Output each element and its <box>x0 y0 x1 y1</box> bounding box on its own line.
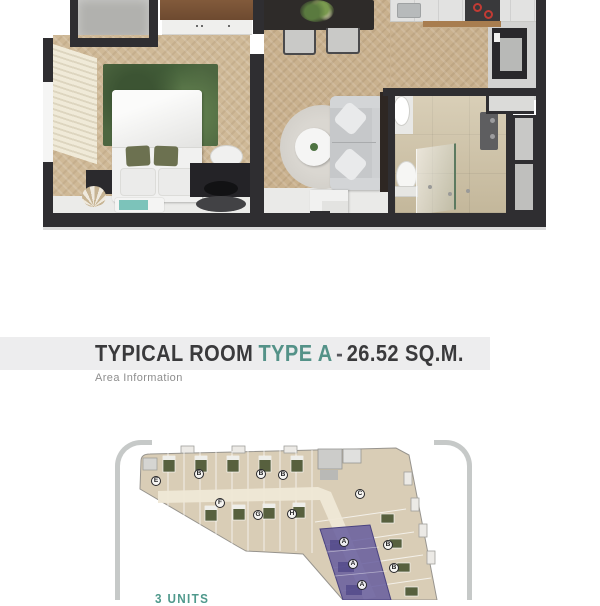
unit-label: F <box>215 498 225 508</box>
brochure-page: { "header": { "title_room": "TYPICAL ROO… <box>0 0 600 600</box>
unit-label: A <box>357 580 367 590</box>
unit-label: G <box>253 510 263 520</box>
units-count-label: 3 UNITS <box>155 591 209 606</box>
unit-label: B <box>278 470 288 480</box>
unit-label: A <box>339 537 349 547</box>
unit-label: B <box>383 540 393 550</box>
unit-label: B <box>389 563 399 573</box>
unit-label: H <box>287 509 297 519</box>
unit-label: A <box>348 559 358 569</box>
unit-label: C <box>355 489 365 499</box>
building-floorplate <box>0 0 600 600</box>
unit-label: E <box>151 476 161 486</box>
building-outline <box>140 448 437 600</box>
unit-label: B <box>256 469 266 479</box>
unit-label: B <box>194 469 204 479</box>
